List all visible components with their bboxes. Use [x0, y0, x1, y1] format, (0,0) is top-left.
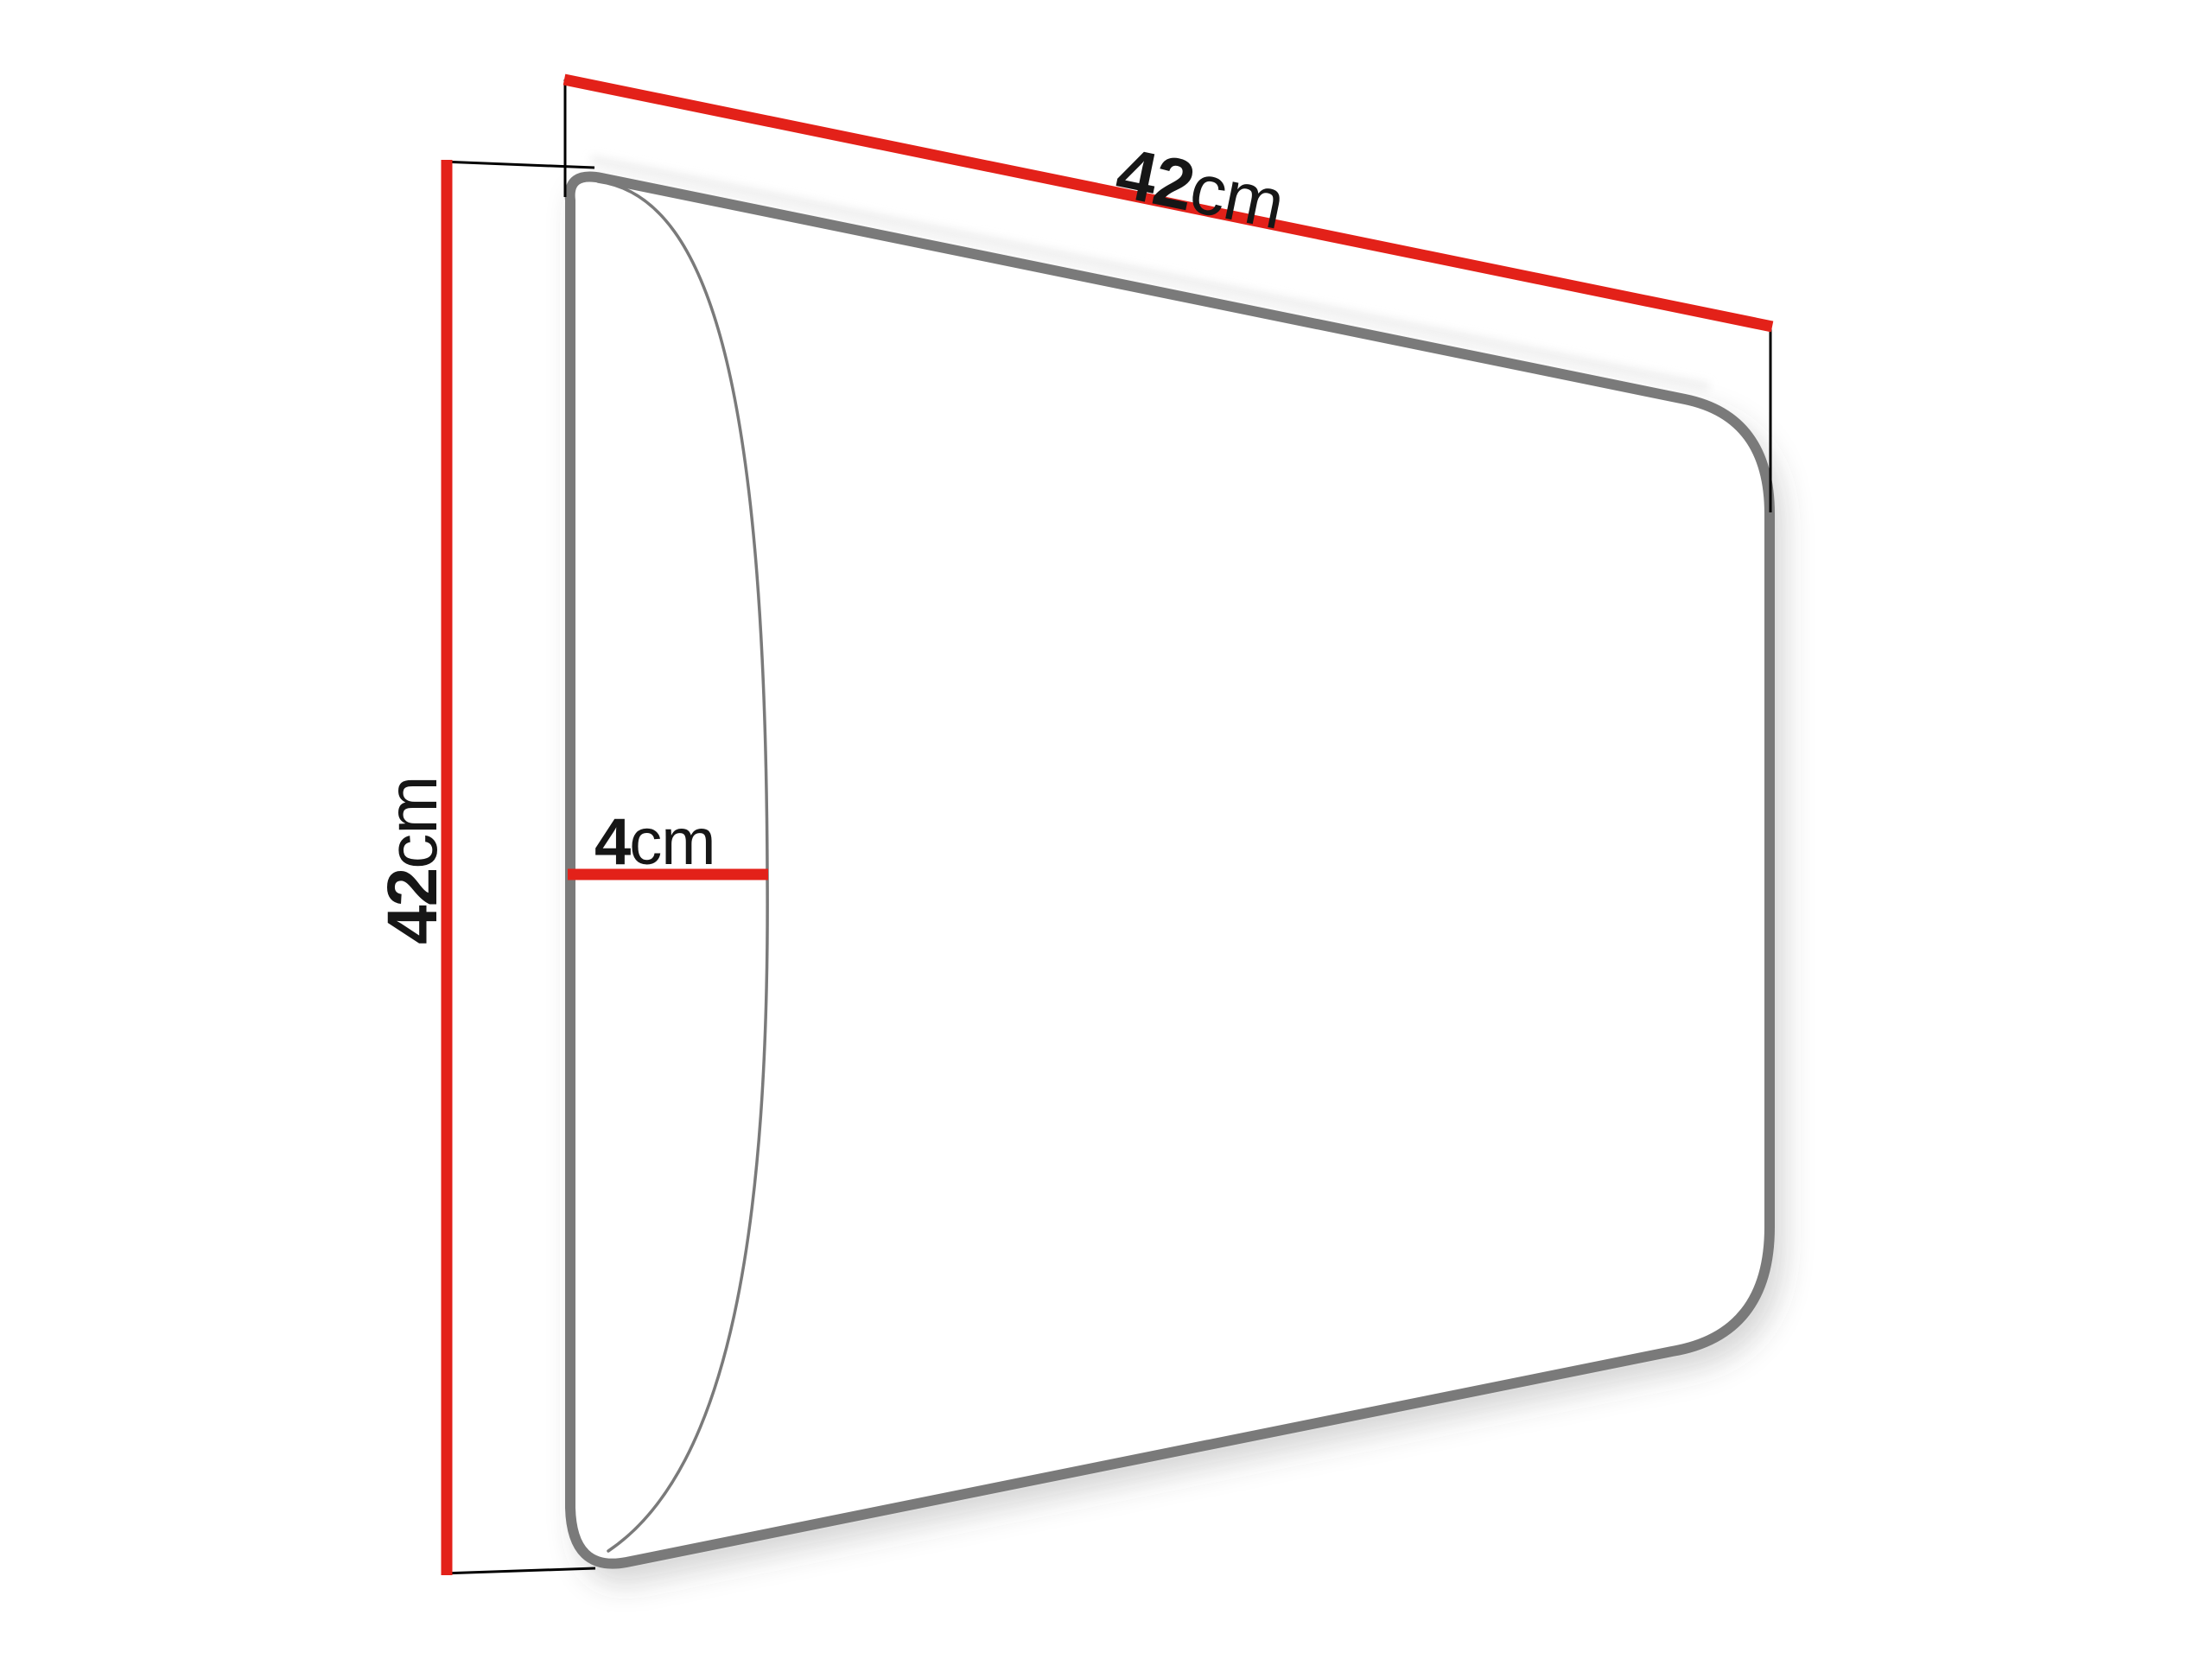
height-label: 42cm [373, 776, 452, 944]
height-extension-line-bottom [442, 1568, 595, 1573]
panel-dimension-diagram: 42cm 42cm 4cm [0, 0, 2212, 1659]
diagram-canvas: 42cm 42cm 4cm [0, 0, 2212, 1659]
panel-drawing [570, 159, 1770, 1564]
depth-label: 4cm [594, 805, 715, 879]
width-label: 42cm [1109, 133, 1290, 244]
height-extension-line-top [442, 162, 594, 168]
